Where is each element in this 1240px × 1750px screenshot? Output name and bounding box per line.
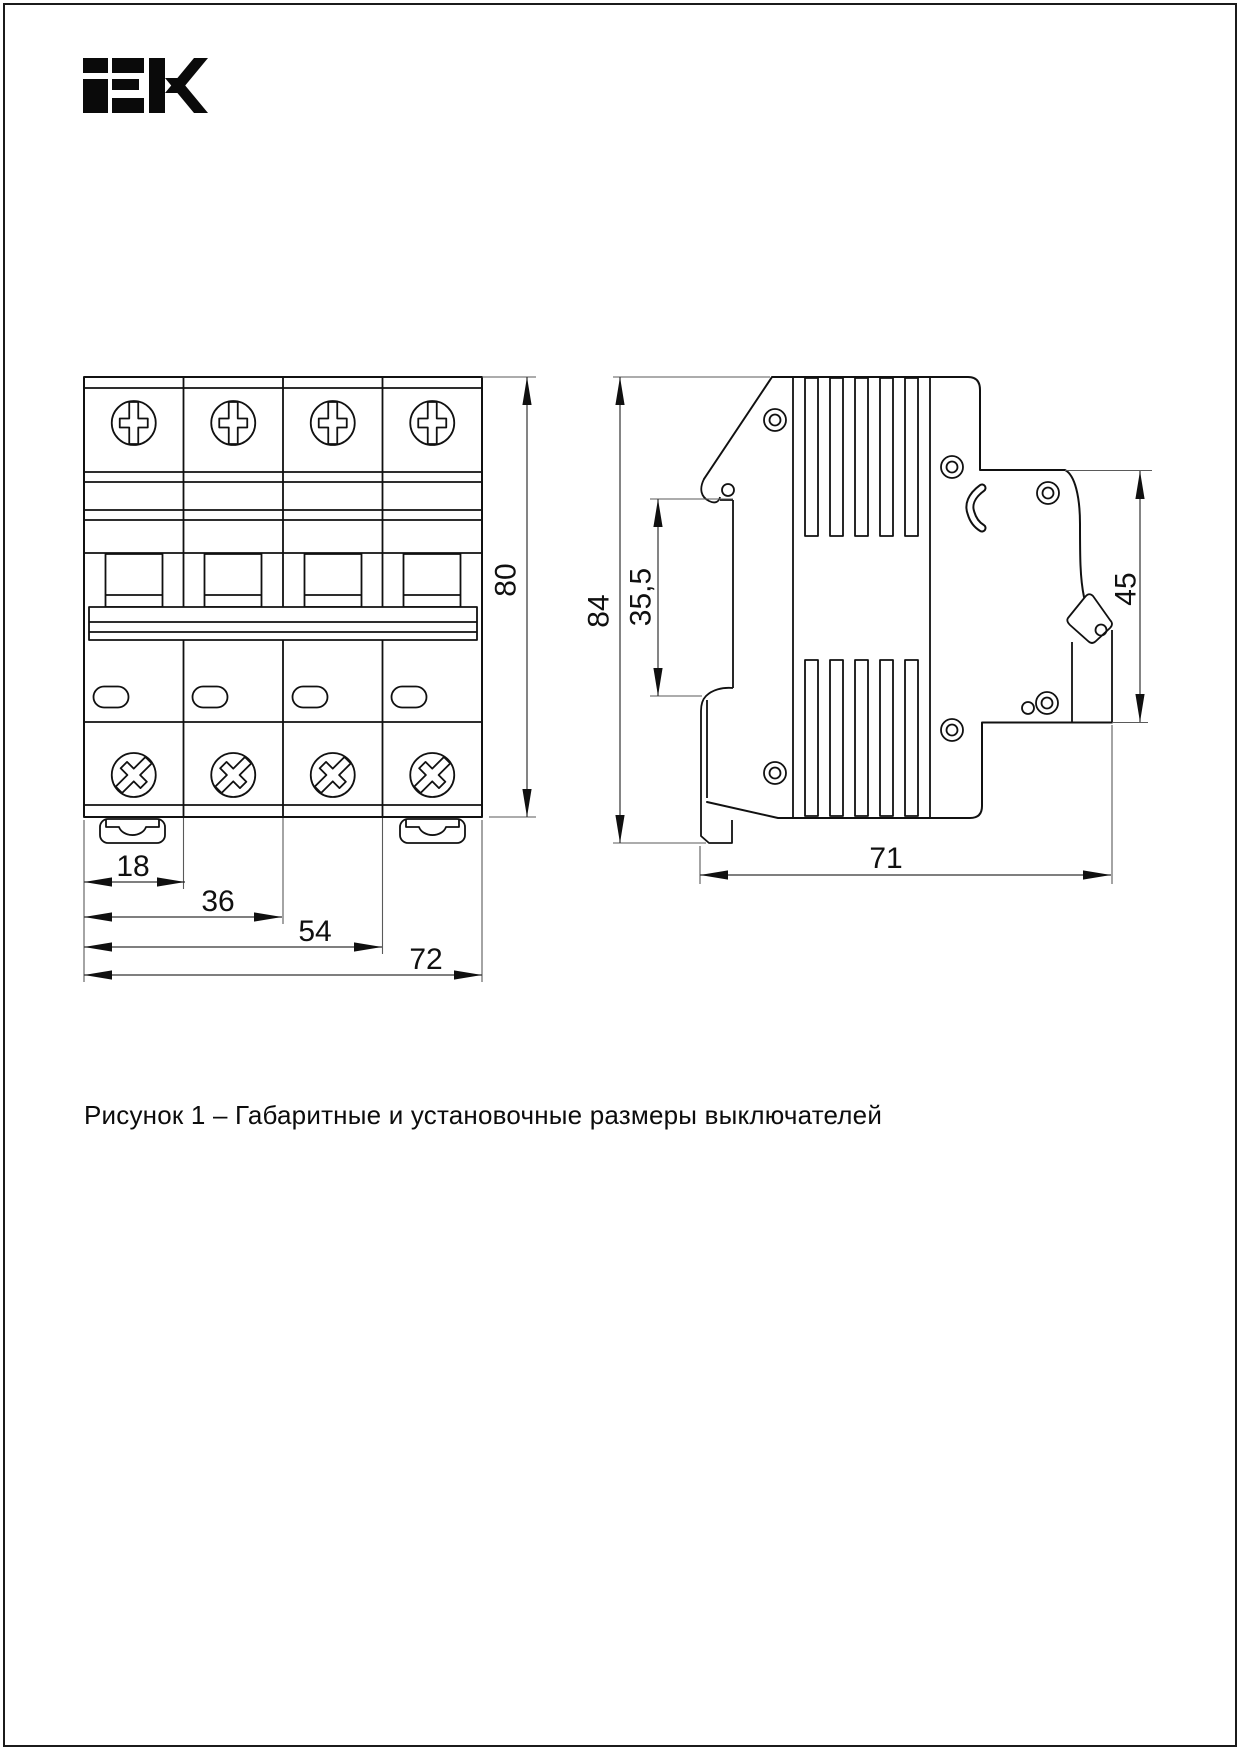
- toggle-tie-bar: [89, 607, 477, 640]
- front-view-drawing: [84, 377, 482, 843]
- vent-slots-bottom: [805, 660, 918, 816]
- dim-label-45: 45: [1110, 572, 1143, 605]
- technical-drawing: 80 18 36 54 72: [0, 0, 1240, 1750]
- dim-label-module-18: 18: [116, 850, 149, 883]
- dim-label-height-84: 84: [583, 594, 616, 627]
- iek-logo: [83, 58, 208, 113]
- dim-label-height-80: 80: [490, 563, 523, 596]
- indicator-windows: [94, 687, 427, 708]
- datasheet-page: 80 18 36 54 72: [0, 0, 1240, 1750]
- dim-label-36: 36: [201, 885, 234, 918]
- figure-caption: Рисунок 1 – Габаритные и установочные ра…: [84, 1100, 882, 1131]
- dim-label-72: 72: [409, 943, 442, 976]
- curved-slot: [970, 488, 982, 528]
- side-view-drawing: [701, 377, 1112, 843]
- dim-label-depth-71: 71: [869, 842, 902, 875]
- dim-label-54: 54: [298, 915, 331, 948]
- dim-label-35-5: 35,5: [625, 568, 658, 626]
- rivet-icon: [764, 409, 1059, 784]
- terminal-lug: [1067, 594, 1112, 643]
- front-view-dimensions: 80 18 36 54 72: [84, 377, 536, 982]
- vent-slots-top: [805, 378, 918, 536]
